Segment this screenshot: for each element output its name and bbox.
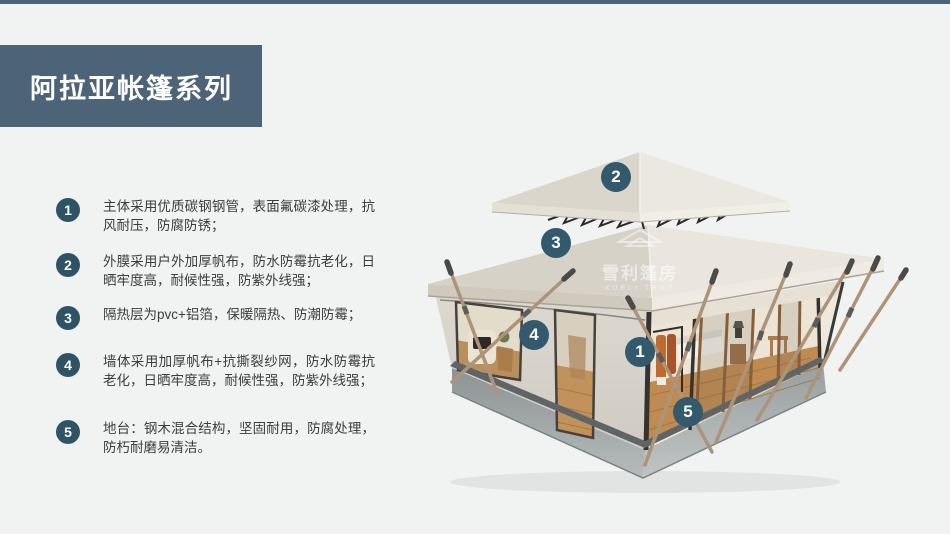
top-roof: [492, 152, 790, 222]
feature-badge-4: 4: [56, 353, 80, 377]
top-accent-strip: [0, 0, 950, 4]
title-box: 阿拉亚帐篷系列: [0, 45, 262, 127]
slide: 阿拉亚帐篷系列 1 主体采用优质碳钢钢管，表面氟碳漆处理，抗风耐压，防腐防锈； …: [0, 0, 950, 534]
feature-badge-1: 1: [56, 198, 80, 222]
tent-illustration: [390, 130, 950, 520]
image-marker-2: 2: [601, 162, 631, 192]
feature-text-2: 外膜采用户外加厚帆布，防水防霉抗老化，日晒牢度高，耐候性强，防紫外线强；: [103, 252, 375, 290]
page-title: 阿拉亚帐篷系列: [30, 67, 233, 106]
feature-badge-3: 3: [56, 306, 80, 330]
image-marker-1: 1: [625, 337, 655, 367]
feature-badge-2: 2: [56, 253, 80, 277]
feature-text-3: 隔热层为pvc+铝箔，保暖隔热、防潮防霉；: [103, 305, 375, 324]
image-marker-5: 5: [673, 397, 703, 427]
feature-text-1: 主体采用优质碳钢钢管，表面氟碳漆处理，抗风耐压，防腐防锈；: [103, 197, 375, 235]
feature-text-5: 地台：钢木混合结构，坚固耐用，防腐处理，防朽耐磨易清洁。: [103, 419, 375, 457]
feature-badge-5: 5: [56, 420, 80, 444]
feature-text-4: 墙体采用加厚帆布+抗撕裂纱网，防水防霉抗老化，日晒牢度高，耐候性强，防紫外线强；: [103, 352, 375, 390]
image-marker-4: 4: [519, 320, 549, 350]
image-marker-3: 3: [541, 228, 571, 258]
